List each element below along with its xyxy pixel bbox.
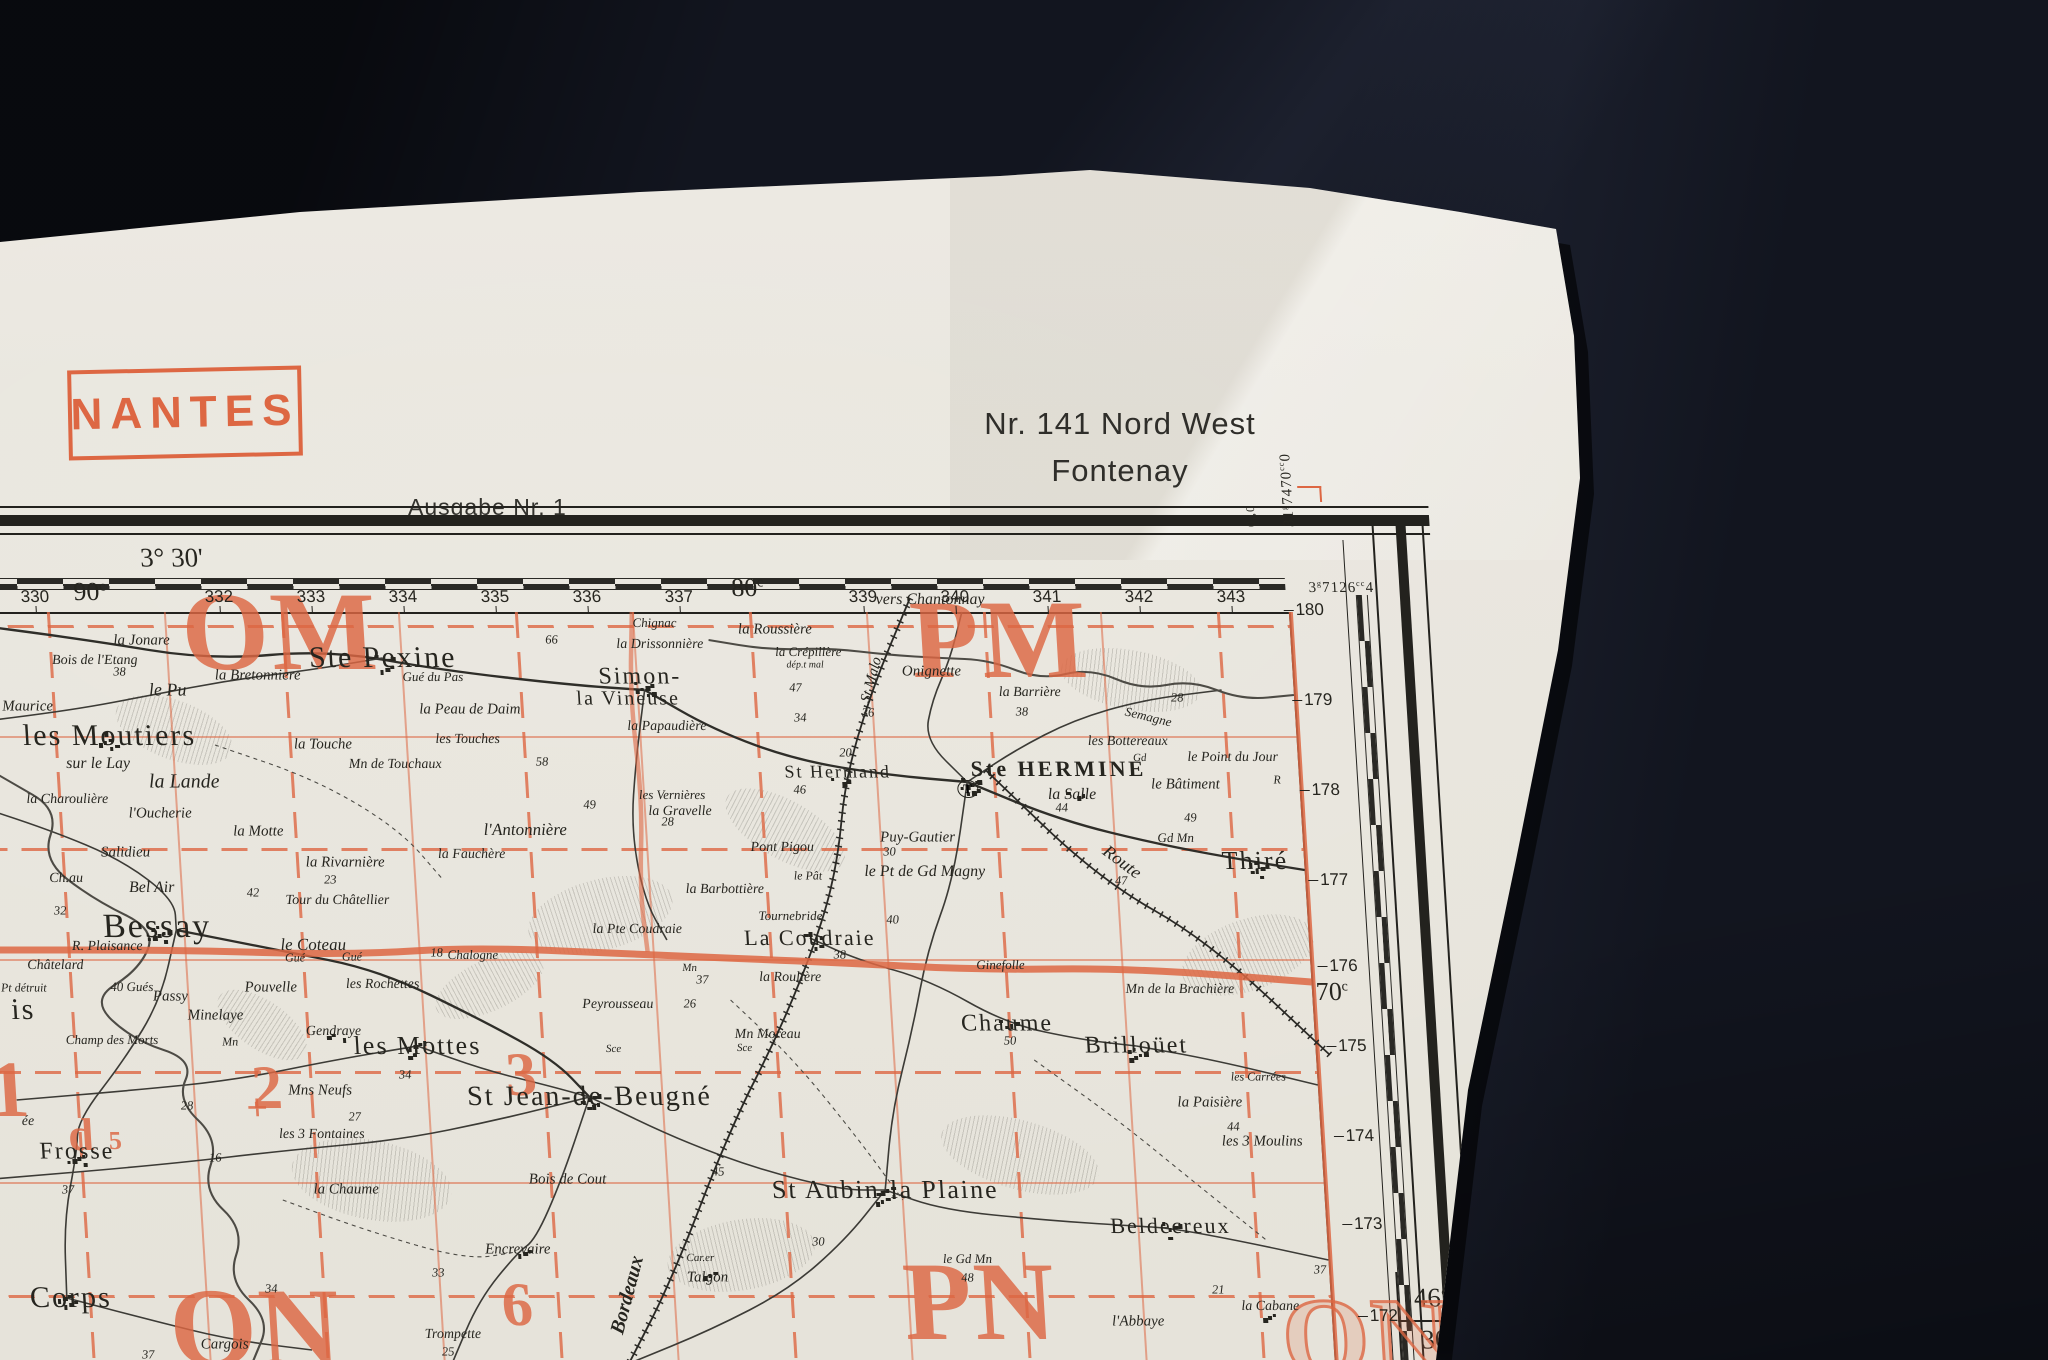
red-corner-tick [1297,486,1321,488]
map-place-label: la Charoulière [26,792,109,808]
map-place-label: les 3 Moulins [1221,1134,1303,1151]
grid-northing-number: 179 [1303,690,1333,710]
map-place-label: Gué [285,951,306,966]
map-place-label: l'Oucherie [128,806,192,823]
map-place-label: 58 [535,755,548,770]
map-place-label: 46 [793,783,806,798]
map-place-label: Chignac [632,615,677,631]
map-place-label: 25 [441,1345,454,1360]
map-place-label: Ste HERMINE [970,756,1147,782]
map-place-label: 32 [53,904,66,919]
map-place-label: la Crépillère [775,644,842,660]
map-place-label: 27 [348,1110,361,1125]
map-place-label: ée [21,1114,34,1130]
map-place-label: Mn Moreau [734,1027,801,1043]
map-place-label: la Barrière [998,685,1061,701]
map-place-label: la Pte Coudraie [592,922,682,938]
map-place-label: sur le Lay [66,755,131,773]
map-place-label: Mn de Touchaux [348,757,442,773]
map-place-label: le Pt de Gd Magny [864,863,986,881]
grid-easting-number: 343 [1216,587,1246,607]
map-place-label: Bessay [102,908,213,946]
grid-easting-number: 340 [940,587,970,607]
map-place-label: Thiré [1221,846,1289,876]
map-place-label: Trompette [424,1327,481,1343]
map-place-label: la Cabane [1241,1299,1300,1315]
map-place-label: le Bâtiment [1151,777,1221,794]
map-place-label: Bel Air [128,879,175,897]
grid-easting-number: 341 [1032,587,1062,607]
map-place-label: Mns Neufs [288,1083,353,1100]
map-place-label: le Point du Jour [1187,750,1279,766]
grid-easting-number: 339 [848,587,878,607]
grid-easting-number: 337 [664,587,694,607]
orange-grid-numeral: + [245,1089,271,1127]
map-place-label: 38 [833,948,846,963]
grid-zone-letter: ON [166,1272,345,1360]
map-place-label: 34 [794,711,807,726]
grid-easting-number: 333 [296,587,326,607]
map-place-label: la Drissonnière [616,637,704,653]
map-place-label: Gué du Pas [402,669,464,685]
map-place-label: 47 [789,681,802,696]
map-place-label: 26 [683,997,696,1012]
map-place-label: Simon- [598,664,682,691]
telegraph-symbol: T [957,780,979,798]
grid-easting-number: 330 [20,587,50,607]
map-place-label: la Fauchère [437,847,505,863]
map-place-label: Sce [737,1042,753,1054]
map-place-label: Pouvelle [244,980,298,997]
settlement-block [1268,1316,1272,1320]
map-place-label: 28 [661,815,674,830]
frame-tick [1292,700,1302,701]
frame-tick [1326,1046,1336,1047]
grid-northing-number: 173 [1353,1214,1383,1234]
frame-tick [1358,1316,1368,1317]
grade-meridian-number: 70c [1315,977,1349,1007]
map-place-label: Frosse [39,1139,115,1166]
sheet-name: Fontenay [920,447,1320,494]
map-place-label: Gd [1133,752,1147,764]
map-place-label: le Pât [793,869,822,884]
map-place-label: 18 [430,946,443,961]
grade-meridian-number: 80c [730,573,764,603]
map-place-label: la Chaume [313,1182,379,1199]
map-place-label: 30 [812,1235,825,1250]
map-place-label: Car.er [686,1252,715,1264]
orange-highlighted-road [0,949,1311,982]
map-place-label: Chalogne [447,947,499,963]
road-line [622,1190,896,1360]
series-title: NANTES [70,386,300,441]
map-place-label: La Coudraie [743,925,876,951]
map-place-label: les Moutiers [22,719,197,753]
map-place-label: la Vineuse [576,688,681,711]
frame-tick [1342,1224,1352,1225]
map-place-label: Ch.au [49,871,84,887]
map-place-label: Châtelard [27,958,84,974]
map-place-label: le Gd Mn [942,1251,992,1267]
grid-northing-number: 178 [1311,780,1341,800]
sheet-title-block: Nr. 141 Nord West Fontenay [920,400,1320,494]
grid-northing-number: 172 [1369,1306,1399,1326]
map-place-label: Minelaye [187,1008,244,1025]
map-place-label: Champ des Morts [65,1032,158,1048]
map-place-label: Tour du Châtellier [285,893,390,909]
frame-tick [1308,880,1318,881]
map-place-label: 48 [961,1271,974,1286]
map-place-label: Puy-Gautier [880,830,956,847]
map-place-label: 37 [1313,1263,1326,1278]
grid-easting-number: 332 [204,587,234,607]
map-place-label: 44 [1055,801,1068,816]
map-place-label: la Bretonniere [214,668,301,685]
frame-tick [1284,610,1294,611]
orange-grid-numeral: 6 [500,1274,537,1336]
map-place-label: 66 [545,633,558,648]
map-place-label: la Roulière [759,970,822,986]
grid-northing-number: 176 [1329,956,1359,976]
map-place-label: Gd Mn [1157,830,1194,846]
map-place-label: les Touches [435,732,500,748]
grid-easting-number: 335 [480,587,510,607]
map-place-label: Gué [341,950,362,965]
sheet-number: Nr. 141 Nord West [920,400,1320,447]
map-place-label: le Pu [148,680,187,701]
map-place-label: Sce [606,1043,622,1055]
map-place-label: St Jean-de-Beugné [466,1081,713,1113]
frame-tick [1300,790,1310,791]
map-place-label: 40 [886,913,899,928]
map-place-label: Mn [222,1035,239,1050]
map-place-label: R [1273,773,1281,788]
map-place-label: Beldecreux [1110,1213,1232,1239]
grid-northing-number: 174 [1345,1126,1375,1146]
grid-easting-number: 336 [572,587,602,607]
map-place-label: les 3 Fontaines [279,1127,366,1143]
map-place-label: la Touche [293,737,352,754]
map-place-label: 30 [883,845,896,860]
settlement-block [842,782,847,787]
map-place-label: 37 [696,973,709,988]
map-place-label: 42 [246,886,259,901]
map-place-label: les Carrées [1230,1070,1286,1085]
map-place-label: 36 [861,706,874,721]
map-place-label: 34 [398,1068,411,1083]
map-place-label: Cargois [200,1337,249,1354]
map-place-label: la Barbottière [685,882,764,898]
map-place-label: 20 [839,746,852,761]
map-place-label: la Gravelle [648,804,712,820]
map-place-label: la Motte [233,824,284,841]
map-place-label: la Peau de Daim [419,702,521,719]
map-place-label: 16 [209,1151,222,1166]
map-place-label: Onignette [901,664,961,681]
map-place-label: is [10,993,36,1027]
map-place-label: Tournebride [758,908,823,924]
grid-northing-number: 177 [1319,870,1349,890]
settlement-block [1260,876,1264,879]
map-place-label: 38 [113,665,126,680]
map-place-label: Encrevaire [485,1242,552,1259]
map-paper-sheet: NANTES Ausgabe Nr. 1 Nr. 141 Nord West F… [0,0,2048,1360]
map-place-label: dép.t mal [786,660,824,671]
map-place-label: Pont Pigou [750,840,814,856]
grid-easting-number: 334 [388,587,418,607]
map-place-label: 28 [180,1099,193,1114]
map-place-label: les Rochettes [345,977,419,993]
map-place-label: Mn de la Brachière [1125,982,1235,998]
map-place-label: Salidieu [100,845,150,862]
map-place-label: 50 [1003,1034,1016,1049]
map-place-label: les Mottes [353,1031,482,1061]
map-place-label: St Hermand [784,762,892,783]
map-place-label: 38 [1015,705,1028,720]
settlement-block [1263,1318,1268,1323]
map-place-label: 28 [1170,691,1183,706]
grid-zone-letter: QN [1279,1282,1458,1360]
map-place-label: 34 [265,1282,278,1297]
map-place-label: la Jonare [113,633,171,650]
map-place-label: la Paisière [1177,1095,1243,1112]
map-place-label: la Roussière [737,622,812,639]
map-place-label: Brilloüet [1084,1033,1189,1060]
map-place-label: les Vernières [638,787,705,803]
map-place-label: la Rivarnière [305,855,385,872]
map-content: OMPMONPNQN1236d5+la JonareBois de l'Etan… [0,500,1523,1360]
grade-meridian-number: 90c [73,577,107,607]
map-place-label: St Aubin-la Plaine [771,1175,1000,1205]
grid-easting-number: 342 [1124,587,1154,607]
map-place-label: l'Antonnière [483,820,567,840]
map-place-label: 37 [61,1183,74,1198]
grid-northing-number: 175 [1338,1036,1368,1056]
map-place-label: 23 [324,873,337,888]
grid-northing-number: 180 [1295,600,1325,620]
frame-tick [1318,966,1328,967]
map-place-label: la Papaudière [627,719,707,735]
map-place-label: la Lande [148,771,220,794]
map-place-label: 49 [1184,811,1197,826]
photo-scene: NANTES Ausgabe Nr. 1 Nr. 141 Nord West F… [0,0,2048,1360]
map-place-label: 49 [583,798,596,813]
map-place-label: 45 [711,1165,724,1180]
map-place-label: Bois de Cout [528,1172,607,1189]
map-place-label: Talgon [686,1270,728,1287]
map-place-label: Peyrousseau [582,997,654,1013]
map-place-label: les Bottereaux [1087,734,1168,750]
map-place-label: 33 [432,1266,445,1281]
map-place-label: 44 [1227,1120,1240,1135]
frame-tick [1334,1136,1344,1137]
map-place-label: Passy [152,989,188,1006]
series-title-box: NANTES [67,366,303,461]
road-line [283,1200,516,1257]
map-place-label: 37 [142,1348,155,1360]
map-print-area: 3° 30' 3g7126cc4 31g7470cc0 0,,0 46° 30'… [0,500,1523,1360]
map-place-label: Corps [29,1281,113,1315]
map-place-label: l'Abbaye [1112,1314,1165,1331]
map-place-label: Maurice [2,699,54,716]
map-place-label: Ginefolle [976,957,1025,973]
map-place-label: 40 Gués [110,979,154,995]
map-place-label: 21 [1212,1283,1225,1298]
